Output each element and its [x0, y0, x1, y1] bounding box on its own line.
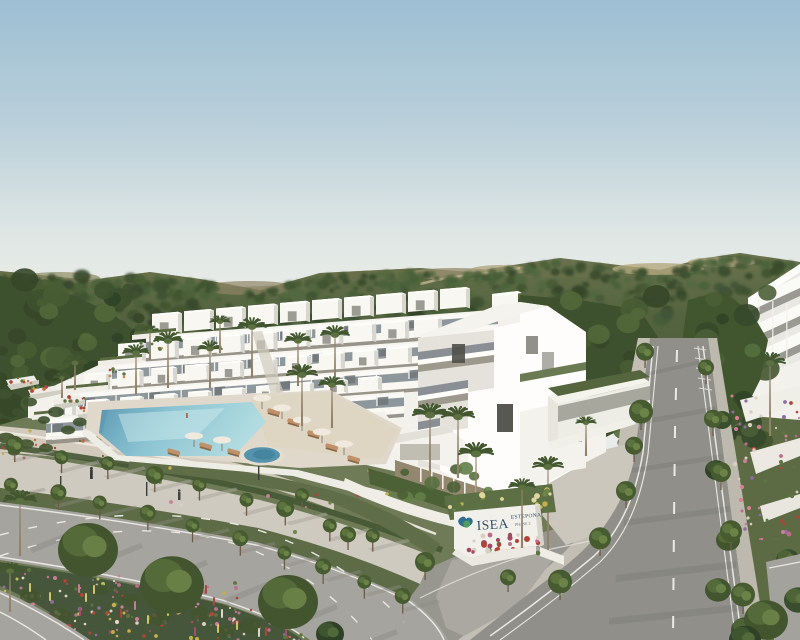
svg-text:ISEA: ISEA: [476, 516, 509, 533]
